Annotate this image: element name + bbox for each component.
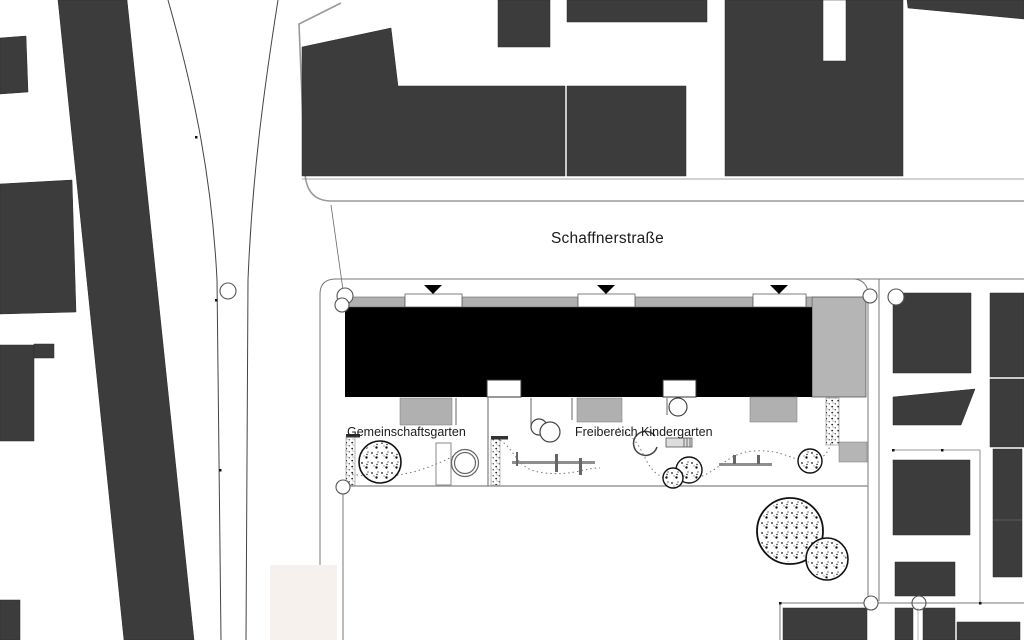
bed-edge-bar xyxy=(491,436,508,440)
building-west-south-block xyxy=(0,600,20,640)
tree-icon xyxy=(806,538,848,580)
tree-icon xyxy=(359,441,401,483)
pink-parcel xyxy=(270,565,337,640)
survey-circle-icon xyxy=(864,596,878,610)
balconies xyxy=(400,397,797,425)
survey-circle-icon xyxy=(863,289,877,303)
roof-inset-box xyxy=(663,380,696,397)
building-north-mid xyxy=(567,86,686,176)
building-west-corner-block xyxy=(0,36,28,94)
tree-icon xyxy=(798,449,822,473)
new-building-roof xyxy=(345,307,812,397)
new-building xyxy=(345,285,866,397)
planter-box xyxy=(436,443,451,485)
tree-ring-icon xyxy=(452,450,479,477)
garden-gray-block xyxy=(839,442,867,462)
building-east xyxy=(895,562,955,596)
entrance-marker-icon xyxy=(424,285,442,294)
building-east xyxy=(893,293,971,373)
annex-block xyxy=(812,297,866,397)
building-east xyxy=(993,449,1022,577)
entrance-marker-icon xyxy=(597,285,615,294)
building-northeast-block xyxy=(725,0,903,176)
survey-circle-icon xyxy=(888,289,904,305)
building-east xyxy=(893,460,970,535)
tree-icon xyxy=(663,468,683,488)
building-north-large xyxy=(302,28,565,176)
building-north-top-bar xyxy=(567,0,707,22)
existing-buildings-west xyxy=(0,0,194,640)
entrance-marker-icon xyxy=(770,285,788,294)
building-east xyxy=(990,293,1024,377)
building-northeast-notch xyxy=(823,0,846,61)
survey-circle-icon xyxy=(335,298,349,312)
building-east xyxy=(923,608,955,640)
building-south xyxy=(783,608,867,640)
street-label: Schaffnerstraße xyxy=(551,230,664,248)
bench-right xyxy=(719,455,772,466)
building-west-nw-block xyxy=(0,180,76,314)
building-west-small-block xyxy=(0,345,34,441)
building-east xyxy=(895,608,913,640)
building-east xyxy=(957,622,1020,640)
play-roller xyxy=(666,438,692,447)
street-curb-right xyxy=(246,0,278,640)
existing-buildings-north xyxy=(302,0,1024,176)
building-north-small xyxy=(498,0,550,47)
building-west-slab xyxy=(58,0,194,640)
building-east-trapezoid xyxy=(893,389,975,425)
entrance-markers xyxy=(424,285,788,294)
garden-strip xyxy=(346,397,867,488)
leader-line xyxy=(331,205,344,297)
building-east xyxy=(990,379,1024,447)
roof-inset-box xyxy=(487,380,521,397)
street-west xyxy=(168,0,278,640)
community-garden-label: Gemeinschaftsgarten xyxy=(347,425,466,439)
survey-circle-icon xyxy=(336,480,350,494)
site-plan: Schaffnerstraße Gemeinschaftsgarten Frei… xyxy=(0,0,1024,640)
site-plan-drawing xyxy=(0,0,1024,640)
tree-small-icon xyxy=(540,422,560,442)
building-far-ne-sliver xyxy=(907,0,1024,19)
tree-small-icon xyxy=(669,398,687,416)
building-west-small-step xyxy=(34,344,54,358)
kindergarten-label: Freibereich Kindergarten xyxy=(575,425,713,439)
bench-left xyxy=(512,452,595,475)
trees-south xyxy=(757,498,848,580)
survey-circle-icon xyxy=(220,283,236,299)
